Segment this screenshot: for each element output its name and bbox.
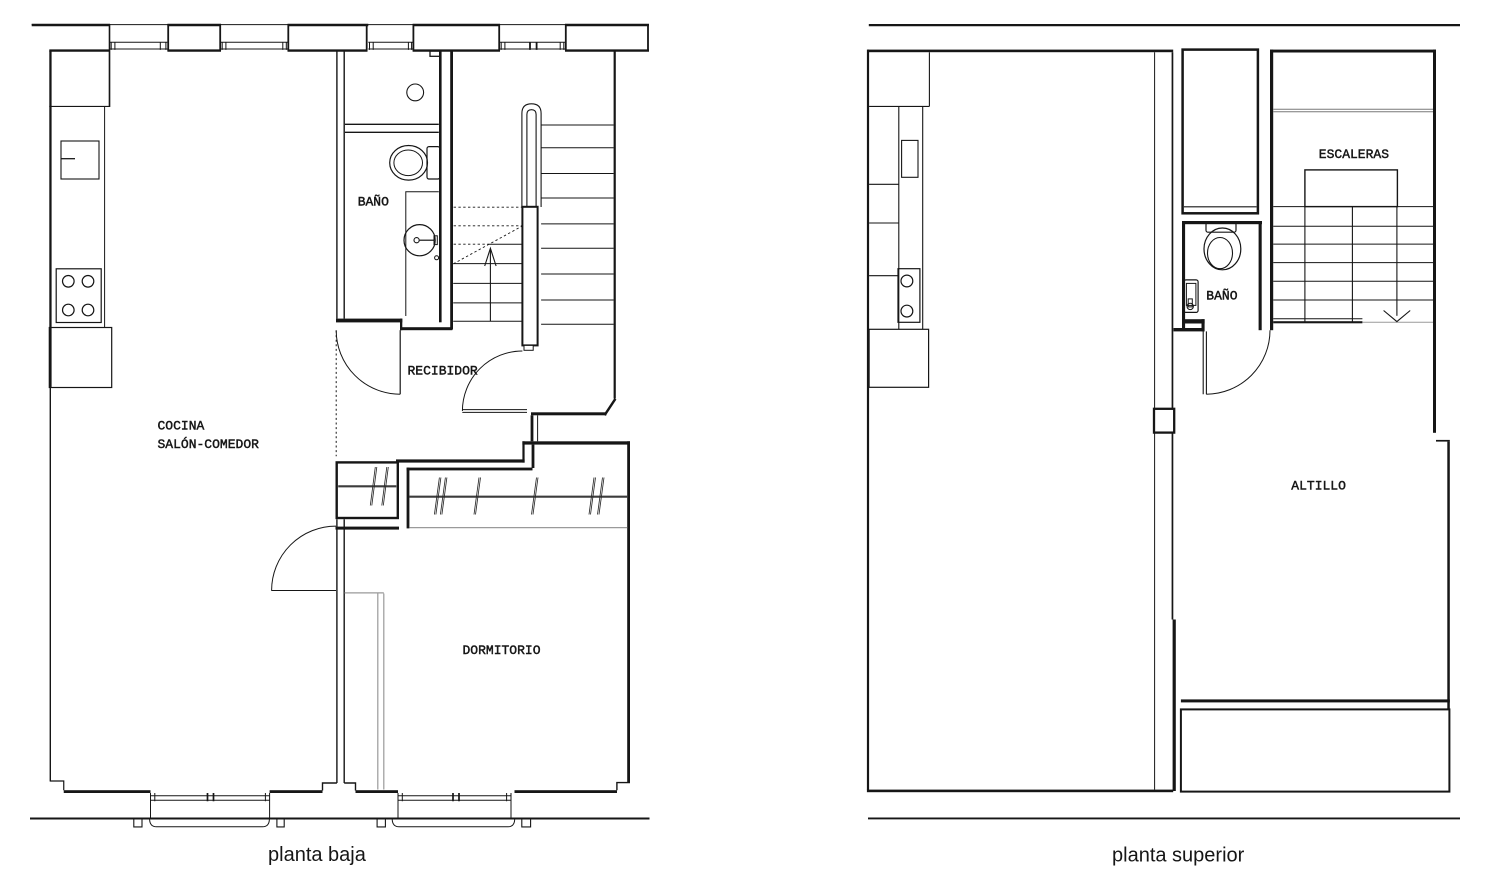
- svg-text:ALTILLO: ALTILLO: [1291, 478, 1346, 493]
- svg-text:SALÓN-COMEDOR: SALÓN-COMEDOR: [158, 437, 260, 452]
- svg-text:RECIBIDOR: RECIBIDOR: [408, 363, 478, 378]
- svg-text:BAÑO: BAÑO: [358, 194, 389, 209]
- svg-text:planta baja: planta baja: [268, 844, 367, 866]
- svg-text:ESCALERAS: ESCALERAS: [1319, 147, 1389, 162]
- svg-text:DORMITORIO: DORMITORIO: [463, 643, 541, 658]
- svg-text:BAÑO: BAÑO: [1206, 289, 1237, 304]
- svg-text:planta superior: planta superior: [1112, 845, 1245, 867]
- svg-text:COCINA: COCINA: [158, 419, 205, 434]
